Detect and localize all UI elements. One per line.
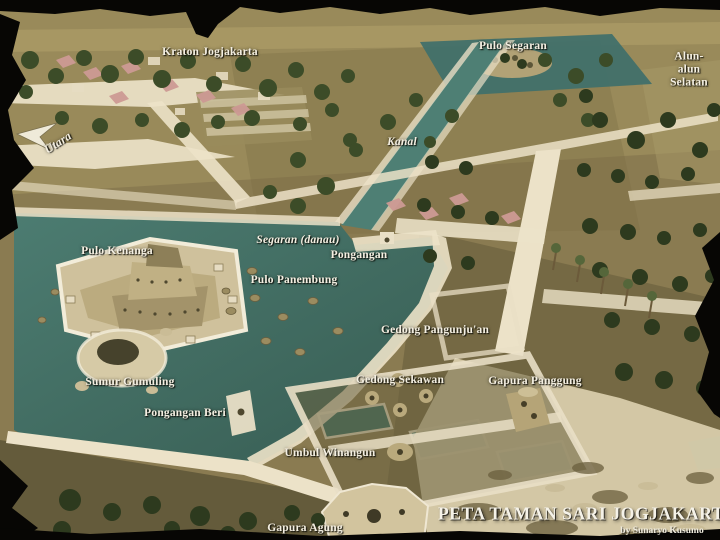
map-label-kanal: Kanal [387,136,417,148]
map-label-gapura-panggung: Gapura Panggung [488,375,581,387]
map-label-kraton-jogjakarta: Kraton Jogjakarta [162,46,258,58]
map-label-pongangan-beri: Pongangan Beri [144,407,226,419]
map-label-pulo-kenanga: Pulo Kenanga [81,245,153,257]
map-label-alun-alun-selatan: Alun-alun Selatan [670,51,708,90]
map-title: PETA TAMAN SARI JOGJAKARTA [438,504,720,525]
map-label-gedong-pangunjuan: Gedong Pangunju'an [381,324,489,336]
taman-sari-map: Kraton Jogjakarta Pulo Segaran Alun-alun… [0,0,720,540]
map-label-pongangan: Pongangan [331,249,388,261]
map-label-umbul-winangun: Umbul Winangun [285,447,376,459]
map-credit: by Sunaryo Kusumo [620,526,703,536]
map-label-segaran-danau: Segaran (danau) [256,234,339,246]
map-label-sumur-gumuling: Sumur Gumuling [85,376,174,388]
map-label-pulo-segaran: Pulo Segaran [479,40,547,52]
map-label-utara: Utara [41,129,74,158]
map-label-gedong-sekawan: Gedong Sekawan [356,374,444,386]
map-label-pulo-panembung: Pulo Panembung [251,274,338,286]
map-label-gapura-agung: Gapura Agung [267,522,343,534]
label-layer: Kraton Jogjakarta Pulo Segaran Alun-alun… [0,0,720,540]
